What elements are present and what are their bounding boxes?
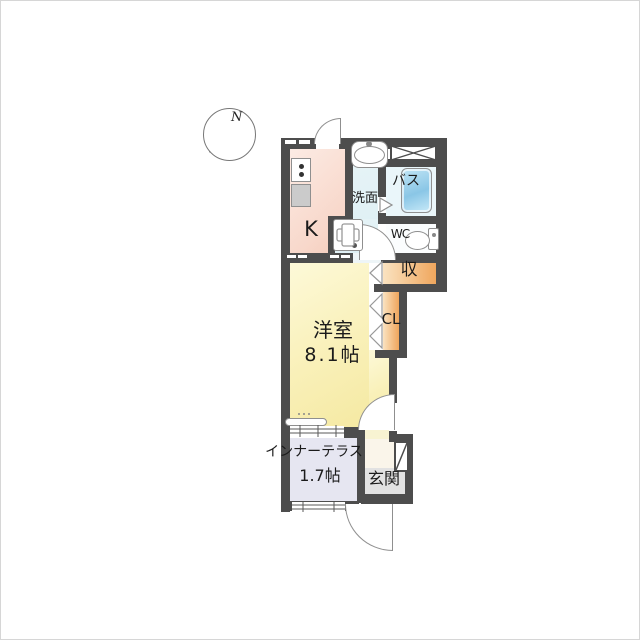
partition-dash bbox=[330, 255, 339, 258]
stove-icon bbox=[291, 158, 311, 182]
wc-label: WC bbox=[388, 228, 412, 241]
compass-north-label: N bbox=[231, 110, 242, 125]
closet-label: CL bbox=[380, 311, 402, 328]
wall-terrace-right bbox=[357, 427, 365, 503]
wall-closet-bottom bbox=[375, 350, 407, 358]
flush-button bbox=[432, 233, 436, 237]
kitchen-label: K bbox=[297, 218, 325, 241]
faucet-dot bbox=[366, 141, 372, 147]
entrance-label: 玄関 bbox=[363, 470, 405, 488]
washbasin-icon bbox=[351, 141, 388, 168]
kitchen-exterior-door-arc bbox=[314, 118, 341, 144]
counter-dot bbox=[308, 413, 310, 415]
wall-storage-bottom bbox=[374, 284, 447, 292]
partition-dash bbox=[287, 255, 296, 258]
terrace-window-bottom bbox=[292, 502, 345, 511]
counter-dot bbox=[298, 413, 300, 415]
wall-entrance-bottom bbox=[361, 494, 413, 504]
washer-pan-icon bbox=[333, 219, 363, 251]
top-wall-window-dash bbox=[285, 140, 296, 144]
wall-right-upper bbox=[436, 138, 447, 292]
western-room-size: 8.1帖 bbox=[293, 345, 373, 366]
western-room-label: 洋室 bbox=[293, 319, 373, 341]
inner-terrace-size: 1.7帖 bbox=[289, 467, 351, 485]
floorplan-canvas: N K 洗面 バス WC 収 CL 洋室 8.1帖 インナーテラス 1.7帖 玄… bbox=[0, 0, 640, 640]
partition-dash bbox=[341, 255, 350, 258]
basin-bowl bbox=[354, 146, 385, 164]
kitchen-sink-icon bbox=[291, 184, 311, 207]
terrace-glass-top bbox=[290, 426, 344, 438]
burner-dot bbox=[299, 164, 304, 169]
closet-door-strip-upper bbox=[369, 263, 383, 284]
burner-dot bbox=[299, 172, 304, 177]
void-cross-box bbox=[390, 145, 437, 161]
counter-dot bbox=[303, 413, 305, 415]
compass-circle bbox=[203, 108, 256, 161]
top-wall-window-dash bbox=[299, 140, 310, 144]
bath-label: バス bbox=[387, 174, 425, 189]
storage-label: 収 bbox=[399, 261, 419, 280]
counter-shelf-icon bbox=[285, 418, 327, 426]
shoe-cabinet-icon bbox=[394, 441, 409, 472]
inner-terrace-label: インナーテラス bbox=[263, 445, 365, 460]
partition-dash bbox=[298, 255, 307, 258]
pan-drain-dot bbox=[352, 243, 357, 248]
entrance-door-arc bbox=[345, 504, 393, 551]
washroom-label: 洗面 bbox=[349, 192, 381, 206]
